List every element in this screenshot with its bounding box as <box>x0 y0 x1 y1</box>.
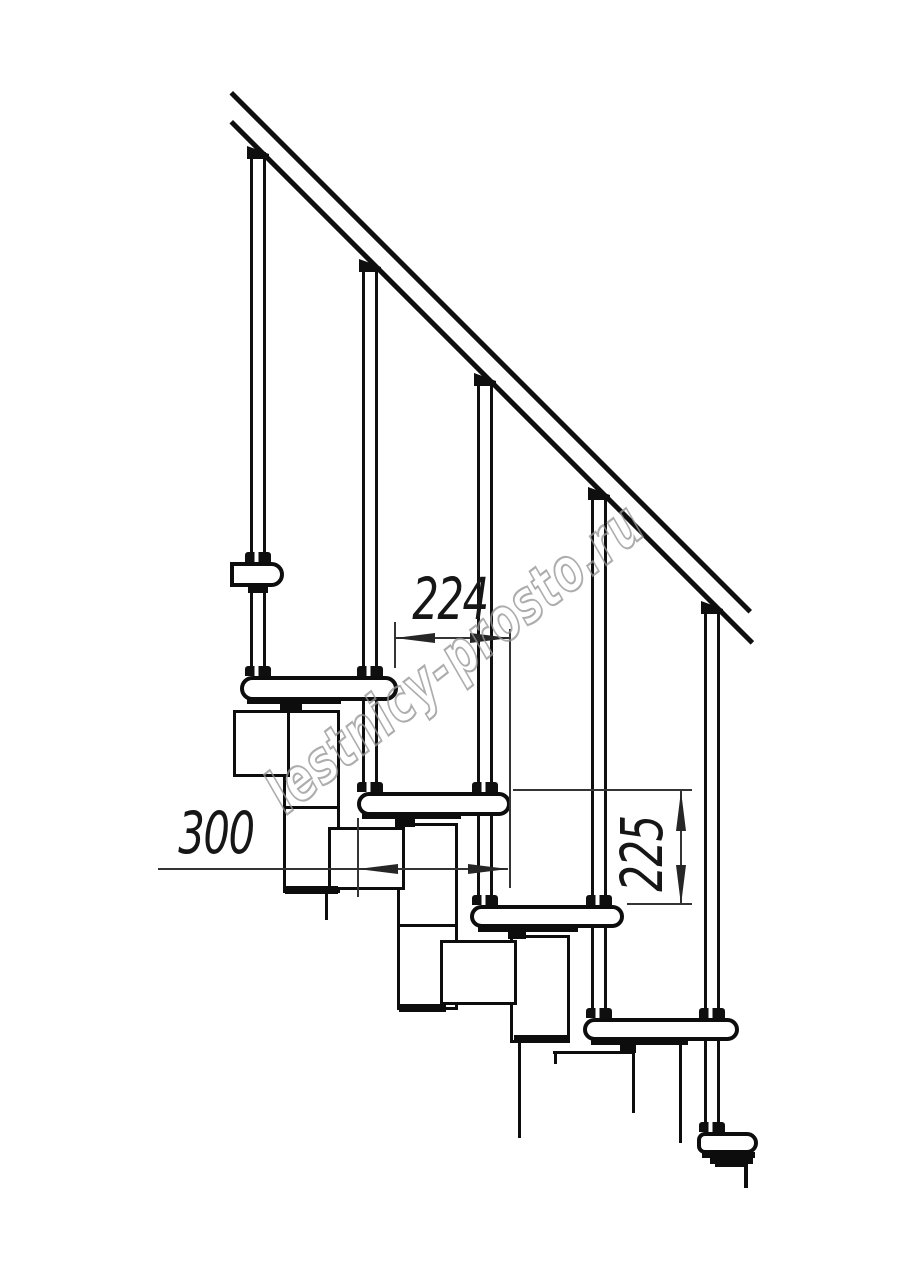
dim-arrow-up <box>676 791 686 831</box>
tread-underline <box>248 586 268 593</box>
support-hook <box>280 699 302 712</box>
tread-underline <box>478 927 578 932</box>
floor-plate <box>697 1132 758 1154</box>
dim-300-line <box>158 868 508 870</box>
module-foot <box>285 886 338 894</box>
support-hook <box>508 928 526 939</box>
post-collar <box>699 1008 725 1018</box>
extension-line <box>357 818 359 897</box>
tread-4 <box>583 1018 739 1041</box>
module-edge-segment <box>679 1040 682 1143</box>
post-collar <box>245 666 271 676</box>
module-edge-segment <box>325 890 328 920</box>
post-collar <box>586 895 612 905</box>
extension-line <box>513 789 692 791</box>
dim-arrow-right <box>468 864 508 874</box>
module-edge-segment <box>554 1051 557 1064</box>
staircase-technical-drawing: 224 300 225 lestnicy-prosto.ru <box>0 0 914 1280</box>
support-hook <box>620 1041 636 1053</box>
module-connector-1 <box>328 827 405 890</box>
dim-300-label: 300 <box>173 810 259 856</box>
module-edge-segment <box>518 1043 521 1138</box>
post-collar <box>357 782 383 792</box>
module-foot <box>399 1004 446 1012</box>
tread-3 <box>470 905 624 928</box>
extension-line <box>509 629 511 888</box>
upper-tread-partial <box>230 562 284 587</box>
post-collar <box>472 895 498 905</box>
module-connector-2 <box>440 940 517 1005</box>
baluster-1 <box>250 152 266 676</box>
dim-225-label: 225 <box>619 811 665 897</box>
baluster-5 <box>704 607 720 1132</box>
post-collar <box>586 1008 612 1018</box>
module-edge-segment <box>632 1048 635 1113</box>
post-collar <box>472 782 498 792</box>
dim-arrow-left <box>358 864 398 874</box>
support-hook <box>395 815 415 827</box>
module-foot <box>514 1035 567 1043</box>
plate-mount-mark <box>744 1166 748 1188</box>
tread-2 <box>357 792 511 816</box>
module-column-3 <box>510 935 570 1043</box>
dim-arrow-down <box>676 865 686 905</box>
post-collar <box>245 552 271 562</box>
tread-underline <box>591 1040 688 1045</box>
post-collar <box>699 1122 725 1132</box>
module-joint-line <box>398 924 457 927</box>
